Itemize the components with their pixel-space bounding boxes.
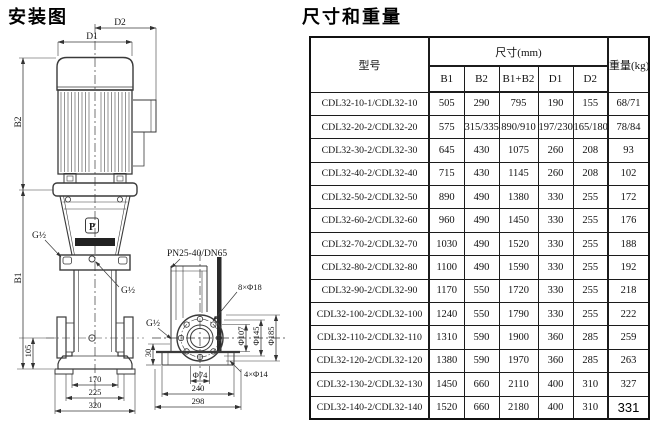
installation-diagram: P xyxy=(0,0,310,422)
header-b2: B2 xyxy=(464,66,499,92)
value-cell: 645 xyxy=(429,139,464,162)
value-cell: 310 xyxy=(573,373,608,396)
value-cell: 660 xyxy=(464,373,499,396)
shaft-guard xyxy=(75,238,115,246)
label-phi145: Φ145 xyxy=(251,327,261,346)
value-cell: 330 xyxy=(538,232,573,255)
value-cell: 890 xyxy=(429,186,464,209)
brand-letter: P xyxy=(89,222,95,233)
port-flange-right xyxy=(124,317,133,358)
value-cell: 1900 xyxy=(499,326,538,349)
value-cell: 176 xyxy=(608,209,649,232)
value-cell: 1720 xyxy=(499,279,538,302)
header-b1b2: B1+B2 xyxy=(499,66,538,92)
value-cell: 2110 xyxy=(499,373,538,396)
port-flange-left xyxy=(57,317,66,358)
value-cell: 890/910 xyxy=(499,115,538,138)
base-foot xyxy=(55,369,73,374)
spec-row: CDL32-130-2/CDL32-1301450660211040031032… xyxy=(310,373,649,396)
spec-row: CDL32-40-2/CDL32-407154301145260208102 xyxy=(310,162,649,185)
dimensions-table: 型号 尺寸(mm) 重量(kg) B1 B2 B1+B2 D1 D2 CDL32… xyxy=(309,36,650,420)
value-cell: 93 xyxy=(608,139,649,162)
model-cell: CDL32-130-2/CDL32-130 xyxy=(310,373,429,396)
model-cell: CDL32-60-2/CDL32-60 xyxy=(310,209,429,232)
label-b1: B1 xyxy=(14,272,24,283)
header-d1: D1 xyxy=(538,66,573,92)
value-cell: 360 xyxy=(538,349,573,372)
value-cell: 208 xyxy=(573,139,608,162)
value-cell: 430 xyxy=(464,162,499,185)
value-cell: 960 xyxy=(429,209,464,232)
value-cell: 260 xyxy=(538,162,573,185)
value-cell: 590 xyxy=(464,326,499,349)
value-cell: 290 xyxy=(464,92,499,115)
value-cell: 1310 xyxy=(429,326,464,349)
value-cell: 660 xyxy=(464,396,499,419)
value-cell: 330 xyxy=(538,256,573,279)
value-cell: 218 xyxy=(608,279,649,302)
spec-row: CDL32-60-2/CDL32-609604901450330255176 xyxy=(310,209,649,232)
table-header: 型号 尺寸(mm) 重量(kg) B1 B2 B1+B2 D1 D2 xyxy=(310,37,649,92)
label-240: 240 xyxy=(192,383,205,393)
value-cell: 68/71 xyxy=(608,92,649,115)
label-d1: D1 xyxy=(86,32,98,42)
label-4xphi14: 4×Φ14 xyxy=(244,369,269,379)
label-g-half-side: G½ xyxy=(146,318,160,329)
label-g-half-mid: G½ xyxy=(121,285,135,296)
model-cell: CDL32-80-2/CDL32-80 xyxy=(310,256,429,279)
header-b1: B1 xyxy=(429,66,464,92)
junction-box xyxy=(133,100,156,132)
motor-lug xyxy=(114,174,126,184)
value-cell: 400 xyxy=(538,396,573,419)
label-g-half-top: G½ xyxy=(32,230,46,241)
value-cell: 1075 xyxy=(499,139,538,162)
base-foot xyxy=(117,369,135,374)
spec-row: CDL32-30-2/CDL32-30645430107526020893 xyxy=(310,139,649,162)
catalog-page: { "install": { "title": "安装图", "labels":… xyxy=(0,0,657,422)
label-phi74: Φ74 xyxy=(193,370,208,380)
value-cell: 795 xyxy=(499,92,538,115)
model-cell: CDL32-10-1/CDL32-10 xyxy=(310,92,429,115)
spec-row: CDL32-80-2/CDL32-8011004901590330255192 xyxy=(310,256,649,279)
model-cell: CDL32-100-2/CDL32-100 xyxy=(310,303,429,326)
label-30: 30 xyxy=(143,349,153,358)
label-105: 105 xyxy=(23,345,33,358)
model-cell: CDL32-110-2/CDL32-110 xyxy=(310,326,429,349)
value-cell: 1380 xyxy=(499,186,538,209)
spec-row: CDL32-50-2/CDL32-508904901380330255172 xyxy=(310,186,649,209)
value-cell: 222 xyxy=(608,303,649,326)
value-cell: 285 xyxy=(573,349,608,372)
value-cell: 575 xyxy=(429,115,464,138)
value-cell: 1450 xyxy=(499,209,538,232)
label-b2: B2 xyxy=(14,116,24,127)
value-cell: 255 xyxy=(573,232,608,255)
label-298: 298 xyxy=(192,396,205,406)
value-cell: 330 xyxy=(538,186,573,209)
value-cell: 1145 xyxy=(499,162,538,185)
value-cell: 331 xyxy=(608,396,649,419)
model-cell: CDL32-30-2/CDL32-30 xyxy=(310,139,429,162)
value-cell: 505 xyxy=(429,92,464,115)
model-cell: CDL32-140-2/CDL32-140 xyxy=(310,396,429,419)
spec-row: CDL32-20-2/CDL32-20575315/335890/910197/… xyxy=(310,115,649,138)
value-cell: 208 xyxy=(573,162,608,185)
value-cell: 315/335 xyxy=(464,115,499,138)
value-cell: 255 xyxy=(573,209,608,232)
model-cell: CDL32-120-2/CDL32-120 xyxy=(310,349,429,372)
value-cell: 260 xyxy=(538,139,573,162)
value-cell: 78/84 xyxy=(608,115,649,138)
model-cell: CDL32-40-2/CDL32-40 xyxy=(310,162,429,185)
value-cell: 197/230 xyxy=(538,115,573,138)
value-cell: 490 xyxy=(464,232,499,255)
value-cell: 550 xyxy=(464,279,499,302)
header-d2: D2 xyxy=(573,66,608,92)
value-cell: 1380 xyxy=(429,349,464,372)
value-cell: 259 xyxy=(608,326,649,349)
value-cell: 310 xyxy=(573,396,608,419)
value-cell: 590 xyxy=(464,349,499,372)
label-8xphi18: 8×Φ18 xyxy=(238,282,262,292)
value-cell: 188 xyxy=(608,232,649,255)
value-cell: 1590 xyxy=(499,256,538,279)
model-cell: CDL32-90-2/CDL32-90 xyxy=(310,279,429,302)
spec-row: CDL32-90-2/CDL32-9011705501720330255218 xyxy=(310,279,649,302)
value-cell: 255 xyxy=(573,303,608,326)
value-cell: 255 xyxy=(573,279,608,302)
value-cell: 165/180 xyxy=(573,115,608,138)
header-weight: 重量(kg) xyxy=(608,37,649,92)
fill-plug xyxy=(89,256,95,262)
value-cell: 1170 xyxy=(429,279,464,302)
value-cell: 1450 xyxy=(429,373,464,396)
spec-row: CDL32-10-1/CDL32-1050529079519015568/71 xyxy=(310,92,649,115)
spec-row: CDL32-70-2/CDL32-7010304901520330255188 xyxy=(310,232,649,255)
value-cell: 255 xyxy=(573,186,608,209)
label-d2: D2 xyxy=(114,18,126,28)
value-cell: 190 xyxy=(538,92,573,115)
dimensions-weight-title: 尺寸和重量 xyxy=(302,3,402,29)
value-cell: 550 xyxy=(464,303,499,326)
spec-row: CDL32-140-2/CDL32-1401520660218040031033… xyxy=(310,396,649,419)
value-cell: 330 xyxy=(538,303,573,326)
value-cell: 1030 xyxy=(429,232,464,255)
value-cell: 1100 xyxy=(429,256,464,279)
spec-table-body: CDL32-10-1/CDL32-1050529079519015568/71C… xyxy=(310,92,649,419)
value-cell: 330 xyxy=(538,209,573,232)
value-cell: 490 xyxy=(464,256,499,279)
value-cell: 155 xyxy=(573,92,608,115)
value-cell: 2180 xyxy=(499,396,538,419)
value-cell: 285 xyxy=(573,326,608,349)
value-cell: 1790 xyxy=(499,303,538,326)
value-cell: 1520 xyxy=(429,396,464,419)
value-cell: 255 xyxy=(573,256,608,279)
pump-drawing: P xyxy=(0,0,310,422)
value-cell: 102 xyxy=(608,162,649,185)
value-cell: 172 xyxy=(608,186,649,209)
model-cell: CDL32-70-2/CDL32-70 xyxy=(310,232,429,255)
value-cell: 490 xyxy=(464,209,499,232)
value-cell: 715 xyxy=(429,162,464,185)
label-phi185: Φ185 xyxy=(266,327,276,346)
value-cell: 490 xyxy=(464,186,499,209)
value-cell: 400 xyxy=(538,373,573,396)
label-225: 225 xyxy=(89,387,102,397)
front-view: P xyxy=(17,24,156,414)
value-cell: 360 xyxy=(538,326,573,349)
value-cell: 263 xyxy=(608,349,649,372)
value-cell: 330 xyxy=(538,279,573,302)
motor-lug xyxy=(64,174,76,184)
label-320: 320 xyxy=(89,400,102,410)
value-cell: 1970 xyxy=(499,349,538,372)
value-cell: 1240 xyxy=(429,303,464,326)
label-pn: PN25-40/DN65 xyxy=(167,249,227,259)
spec-row: CDL32-120-2/CDL32-1201380590197036028526… xyxy=(310,349,649,372)
model-cell: CDL32-50-2/CDL32-50 xyxy=(310,186,429,209)
model-cell: CDL32-20-2/CDL32-20 xyxy=(310,115,429,138)
value-cell: 430 xyxy=(464,139,499,162)
value-cell: 327 xyxy=(608,373,649,396)
label-170: 170 xyxy=(89,374,102,384)
spec-row: CDL32-110-2/CDL32-1101310590190036028525… xyxy=(310,326,649,349)
label-phi107: Φ107 xyxy=(236,327,246,346)
header-model: 型号 xyxy=(310,37,429,92)
header-dims-group: 尺寸(mm) xyxy=(429,37,608,66)
spec-row: CDL32-100-2/CDL32-1001240550179033025522… xyxy=(310,303,649,326)
value-cell: 192 xyxy=(608,256,649,279)
value-cell: 1520 xyxy=(499,232,538,255)
